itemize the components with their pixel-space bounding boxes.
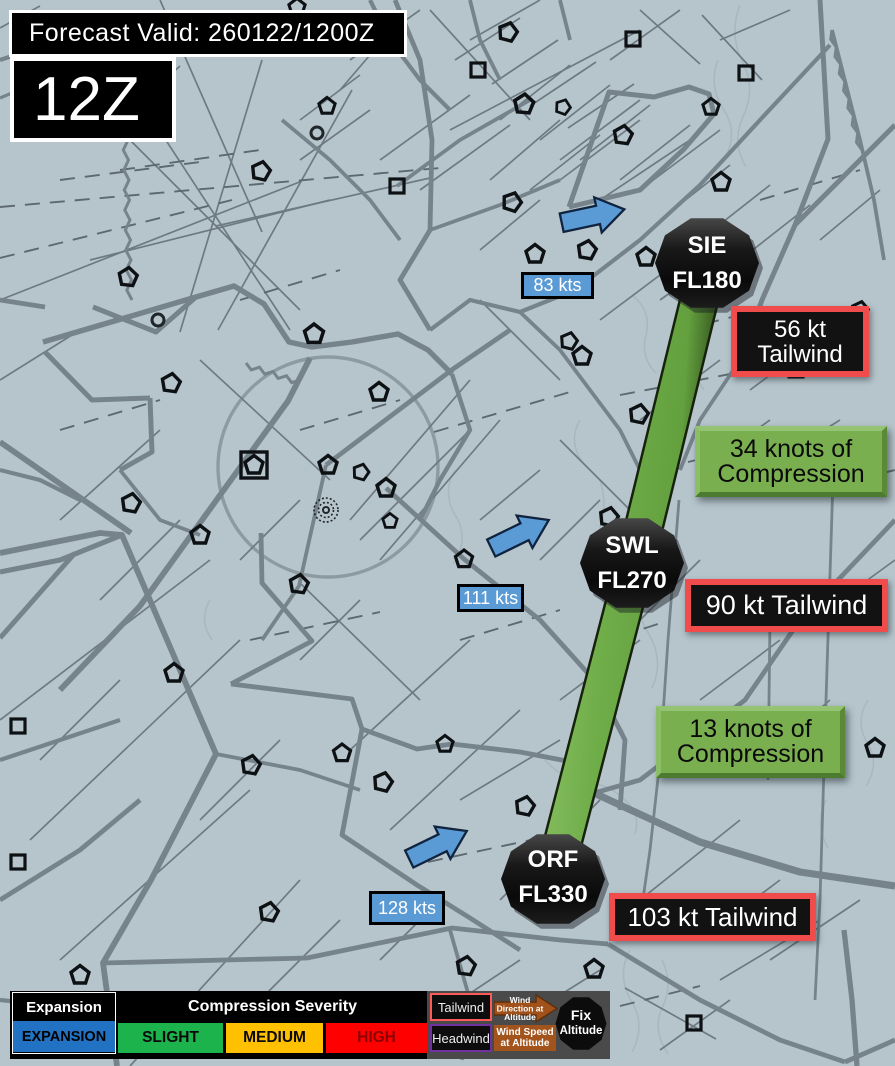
svg-text:Altitude: Altitude [504, 1012, 536, 1022]
svg-text:Fix: Fix [571, 1007, 591, 1023]
svg-text:Altitude: Altitude [560, 1025, 603, 1037]
